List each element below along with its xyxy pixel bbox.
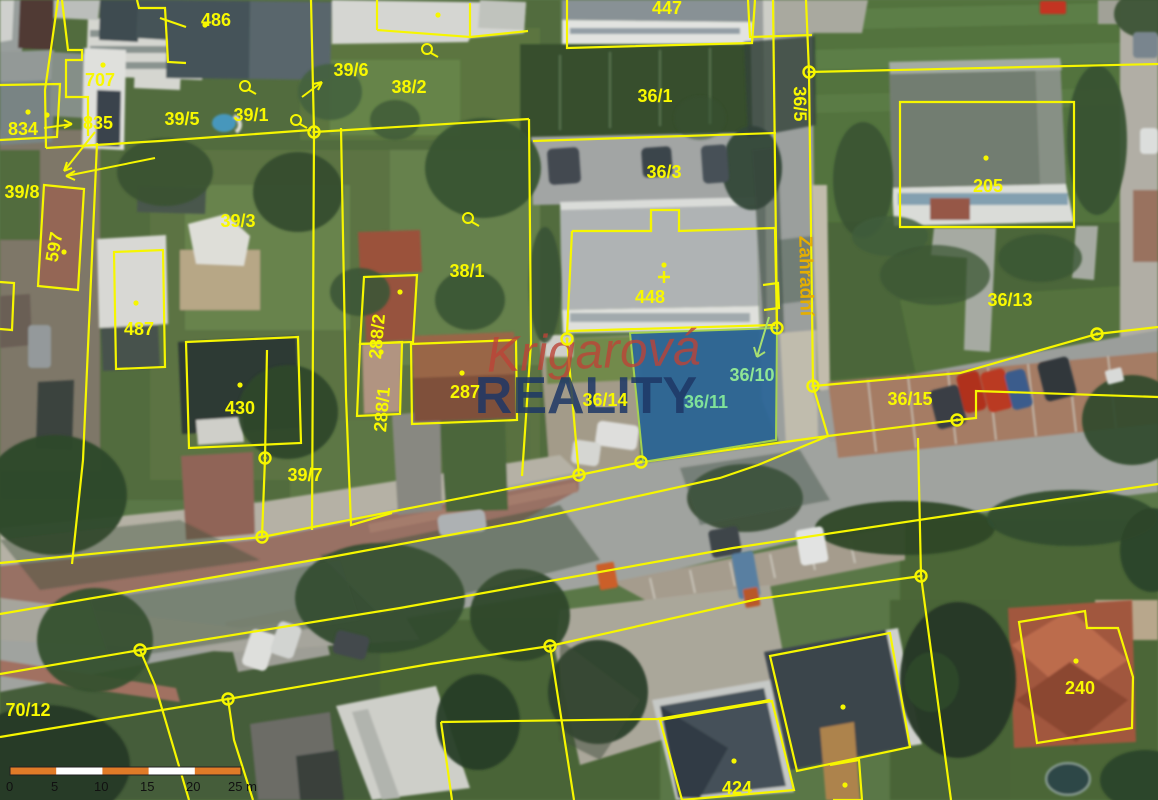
svg-text:430: 430 — [225, 398, 255, 418]
svg-text:39/8: 39/8 — [4, 182, 39, 202]
svg-text:36/13: 36/13 — [987, 290, 1032, 310]
svg-text:288/2: 288/2 — [365, 313, 389, 360]
svg-text:36/11: 36/11 — [684, 392, 728, 412]
svg-text:834: 834 — [8, 119, 38, 139]
svg-text:424: 424 — [722, 778, 752, 798]
svg-text:487: 487 — [124, 319, 154, 339]
svg-text:36/1: 36/1 — [637, 86, 672, 106]
svg-text:39/5: 39/5 — [164, 109, 199, 129]
svg-text:39/1: 39/1 — [233, 105, 268, 125]
svg-text:486: 486 — [201, 10, 231, 30]
svg-text:Zahradní: Zahradní — [794, 236, 816, 317]
svg-text:287: 287 — [450, 382, 480, 402]
svg-text:36/14: 36/14 — [582, 390, 627, 410]
svg-text:205: 205 — [973, 176, 1003, 196]
svg-text:447: 447 — [652, 0, 682, 18]
svg-text:10: 10 — [94, 779, 108, 794]
svg-text:38/1: 38/1 — [449, 261, 484, 281]
svg-text:15: 15 — [140, 779, 154, 794]
svg-text:36/10: 36/10 — [729, 365, 774, 385]
svg-text:36/15: 36/15 — [887, 389, 932, 409]
svg-text:36/3: 36/3 — [646, 162, 681, 182]
svg-text:448: 448 — [635, 287, 665, 307]
svg-text:240: 240 — [1065, 678, 1095, 698]
svg-text:39/7: 39/7 — [287, 465, 322, 485]
svg-text:707: 707 — [85, 70, 115, 90]
svg-text:38/2: 38/2 — [391, 77, 426, 97]
svg-text:25 m: 25 m — [228, 779, 257, 794]
svg-text:39/3: 39/3 — [220, 211, 255, 231]
svg-text:36/5: 36/5 — [790, 86, 811, 121]
svg-text:70/12: 70/12 — [5, 700, 50, 720]
svg-text:5: 5 — [51, 779, 58, 794]
svg-text:0: 0 — [6, 779, 13, 794]
svg-text:20: 20 — [186, 779, 200, 794]
svg-text:835: 835 — [83, 113, 113, 133]
svg-text:288/1: 288/1 — [370, 386, 394, 433]
svg-text:39/6: 39/6 — [333, 60, 368, 80]
